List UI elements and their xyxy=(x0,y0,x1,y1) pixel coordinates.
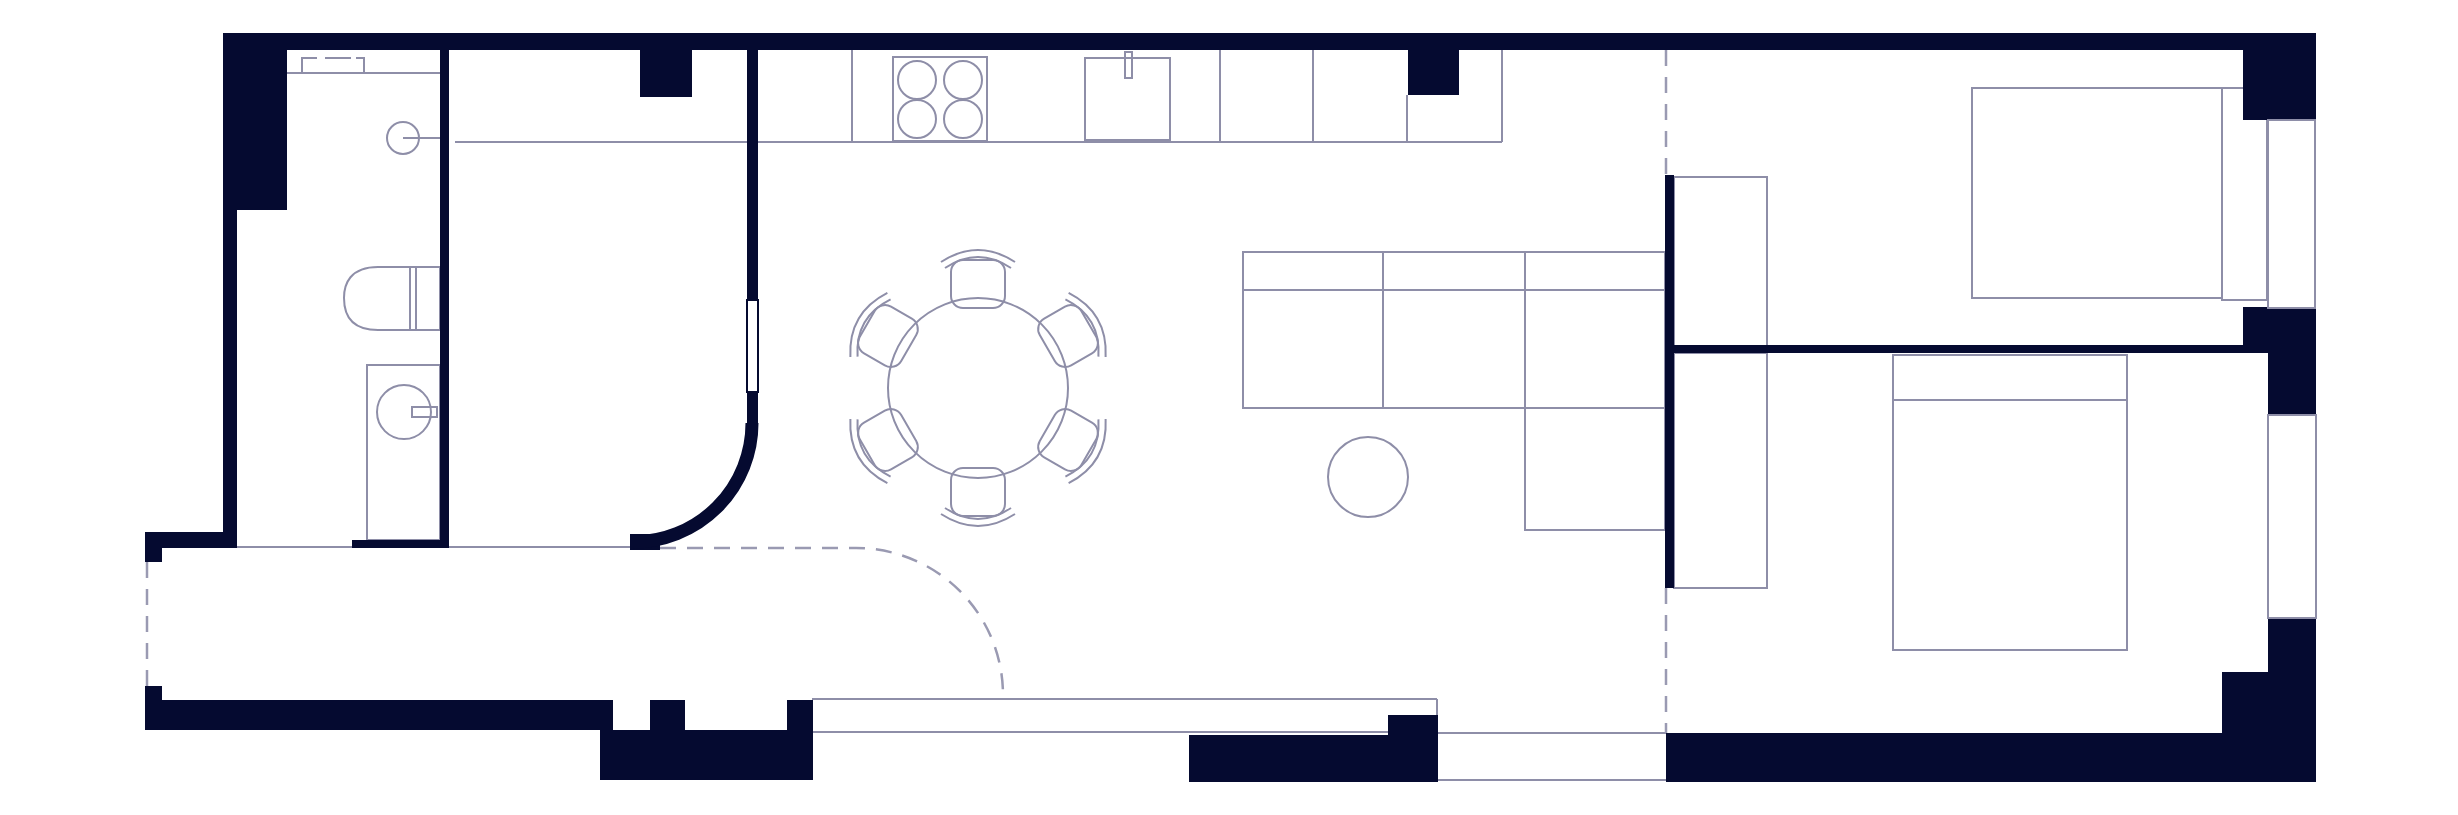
wall-terrace-step xyxy=(145,532,237,548)
wall-hall-partition-upper xyxy=(747,50,758,300)
wall-hall-partition-lower xyxy=(747,392,758,423)
wall-closet-bathroom xyxy=(440,50,449,547)
wall-terrace-leg-upper xyxy=(145,548,162,562)
wall-bedrooms-vertical xyxy=(1665,175,1674,588)
wall-entry-stub xyxy=(640,50,692,97)
wall-south-block xyxy=(1189,735,1438,782)
wall-right-top-corner xyxy=(2243,49,2316,120)
wall-left-step xyxy=(237,202,287,210)
wall-corner-step xyxy=(2222,672,2316,782)
wall-terrace-parapet xyxy=(145,700,613,730)
window-bedroom-1 xyxy=(2268,120,2315,308)
wall-south-block-step xyxy=(1388,715,1438,737)
window-bedroom-2 xyxy=(2268,415,2316,618)
wall-parapet-pier-a xyxy=(650,700,685,732)
wall-left-lower xyxy=(223,202,237,548)
wall-bedroom-divider xyxy=(1674,345,2268,353)
floor-background xyxy=(0,0,2458,815)
wall-south-right xyxy=(1666,733,2226,782)
hall-partition-door-segment xyxy=(747,300,758,392)
wall-left-upper xyxy=(223,33,287,202)
wall-right-mid xyxy=(2268,353,2316,415)
wall-kitchen-pier xyxy=(1408,50,1459,95)
wall-top xyxy=(223,33,2316,50)
wall-south-lower-left xyxy=(600,730,813,780)
wall-terrace-leg-lower xyxy=(145,686,162,700)
wall-bathroom-bottom xyxy=(352,540,449,548)
wall-right-lower xyxy=(2268,618,2316,678)
floor-plan-canvas xyxy=(0,0,2458,815)
